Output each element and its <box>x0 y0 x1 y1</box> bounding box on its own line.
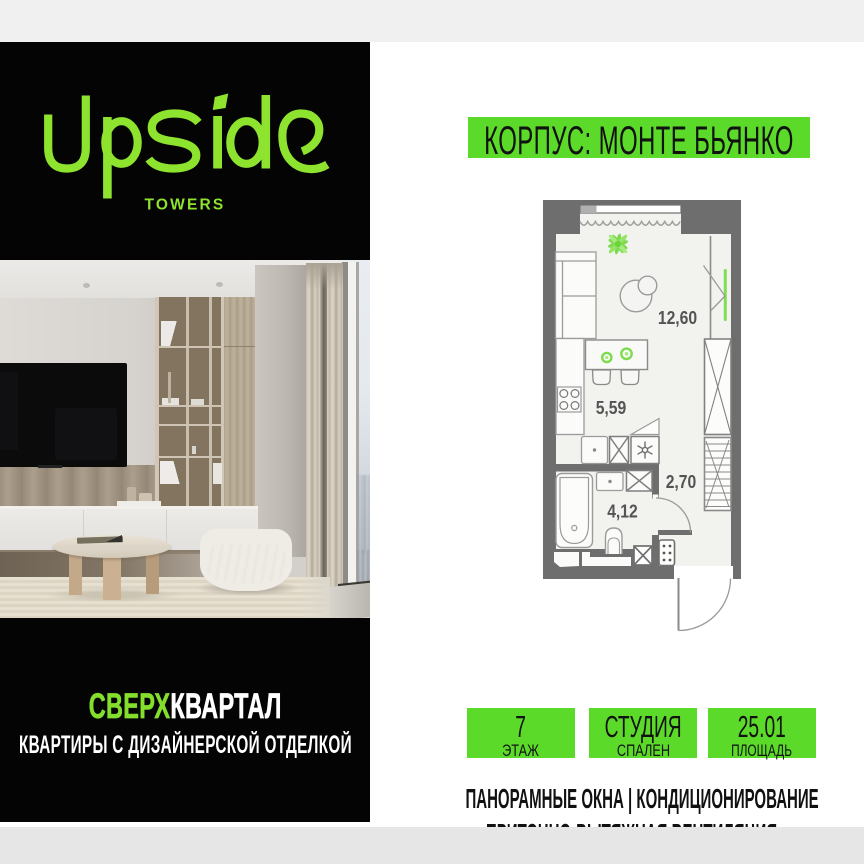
svg-text:5,59: 5,59 <box>596 397 627 419</box>
svg-text:2,70: 2,70 <box>666 471 697 493</box>
svg-text:12,60: 12,60 <box>658 307 697 329</box>
svg-text:4,12: 4,12 <box>607 500 638 522</box>
svg-text:TOWERS: TOWERS <box>145 197 226 214</box>
